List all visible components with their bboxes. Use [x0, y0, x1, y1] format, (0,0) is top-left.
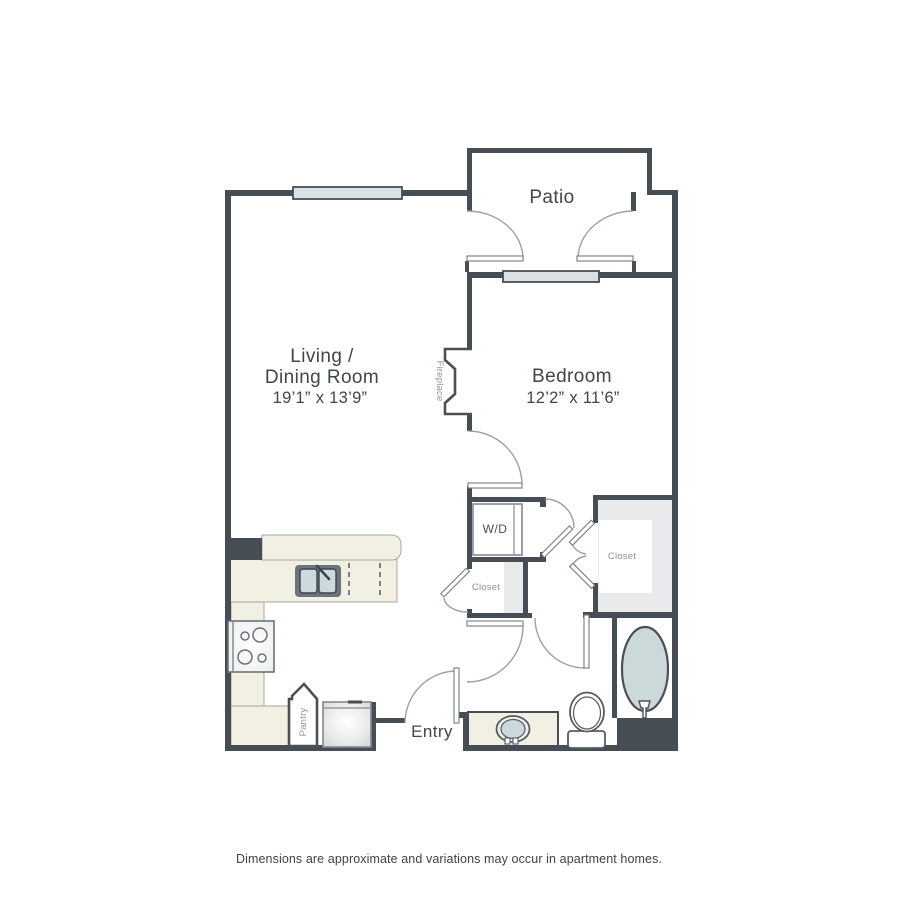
living-room-label-line2: Dining Room: [265, 367, 379, 388]
hall-closet-door-swing: [444, 598, 468, 612]
patio-label: Patio: [529, 187, 574, 208]
patio-door-left-swing: [467, 211, 523, 259]
floor-plan-drawing: Patio Living / Dining Room 19’1” x 13’9”…: [0, 0, 900, 900]
wall-patio-left: [467, 148, 472, 211]
wall-patio-step: [647, 190, 678, 195]
patio-door-right-leaf: [577, 256, 633, 261]
closet-floors: [504, 500, 672, 613]
toilet-seat: [574, 697, 601, 729]
bathroom-door-swing: [535, 618, 585, 668]
wall-bedroom-closet-top: [593, 495, 678, 500]
vanity-faucet-left: [505, 738, 510, 744]
wall-bathroom-top: [583, 612, 678, 618]
wall-bedroom-closet-west-lower: [593, 583, 598, 612]
bathroom-wall-block: [617, 718, 678, 751]
wall-bedroom-west-upper: [467, 277, 472, 349]
hall-door-leaf: [467, 621, 523, 626]
kitchen-wall-block: [227, 538, 262, 560]
wall-patio-stub-left: [465, 261, 469, 272]
bedroom-patio-window: [503, 271, 599, 282]
entry-door-swing: [405, 671, 457, 723]
hall-closet-door-leaf: [441, 568, 470, 597]
living-room-dimensions: 19’1” x 13’9”: [273, 389, 368, 407]
entry-door-leaf: [454, 668, 459, 723]
wall-hall-closet-east: [523, 562, 528, 613]
fireplace: [445, 349, 472, 414]
bedroom-closet-door-swing-bottom: [573, 556, 586, 564]
wall-wd-closet-divider: [467, 557, 545, 562]
vanity-faucet-right: [513, 738, 518, 744]
pantry-label: Pantry: [298, 708, 309, 737]
bedroom-closet-door-leaf-bottom: [570, 563, 595, 588]
kitchen-counter-bottom-run: [231, 706, 289, 748]
living-room-window: [293, 187, 402, 199]
bedroom-door-swing: [468, 431, 522, 485]
bedroom-door-leaf: [468, 483, 522, 488]
washer-dryer-label: W/D: [483, 522, 508, 536]
vanity-sink-basin: [501, 720, 525, 739]
hall-closet-label: Closet: [472, 582, 500, 593]
kitchen-bar-counter: [262, 535, 401, 560]
bedroom-dimensions: 12’2” x 11’6”: [526, 389, 619, 407]
kitchen-sink-basin-left: [300, 569, 317, 593]
wall-tub-partition: [612, 617, 617, 718]
wall-wd-top: [467, 497, 545, 502]
patio-door-right-swing: [578, 211, 633, 259]
fireplace-label: Fireplace: [434, 361, 445, 402]
floor-plan-page: Patio Living / Dining Room 19’1” x 13’9”…: [0, 0, 900, 900]
disclaimer-text: Dimensions are approximate and variation…: [236, 852, 662, 866]
wd-door-swing: [545, 499, 574, 528]
bedroom-label: Bedroom: [532, 366, 612, 387]
walls: [225, 148, 678, 751]
wall-entry-recess-south: [376, 718, 405, 723]
patio-door-left-leaf: [467, 256, 523, 261]
bedroom-closet-door-swing-top: [573, 546, 586, 554]
wall-patio-right: [647, 148, 652, 192]
toilet-tank: [568, 731, 605, 748]
refrigerator-handle: [348, 701, 362, 704]
wall-patio-top: [467, 148, 652, 153]
bedroom-closet-label: Closet: [608, 551, 636, 562]
wall-bedroom-west-mid: [467, 413, 472, 431]
bathroom-door-leaf: [584, 615, 589, 668]
stove: [228, 621, 274, 672]
refrigerator: [323, 702, 371, 747]
living-room-label-line1: Living /: [290, 346, 354, 367]
wd-door-leaf: [541, 526, 572, 557]
hall-closet-floor: [504, 562, 523, 613]
hall-door-swing: [467, 626, 523, 682]
wall-entry-east: [463, 712, 469, 750]
wall-patio-stub-right: [632, 261, 636, 272]
entry-label: Entry: [411, 722, 453, 741]
wall-bedroom-closet-west-upper: [593, 500, 598, 523]
wall-hall-bottom: [467, 613, 532, 618]
wall-patio-door-jamb: [631, 192, 636, 211]
bathtub: [622, 627, 668, 711]
doors: [405, 211, 633, 723]
